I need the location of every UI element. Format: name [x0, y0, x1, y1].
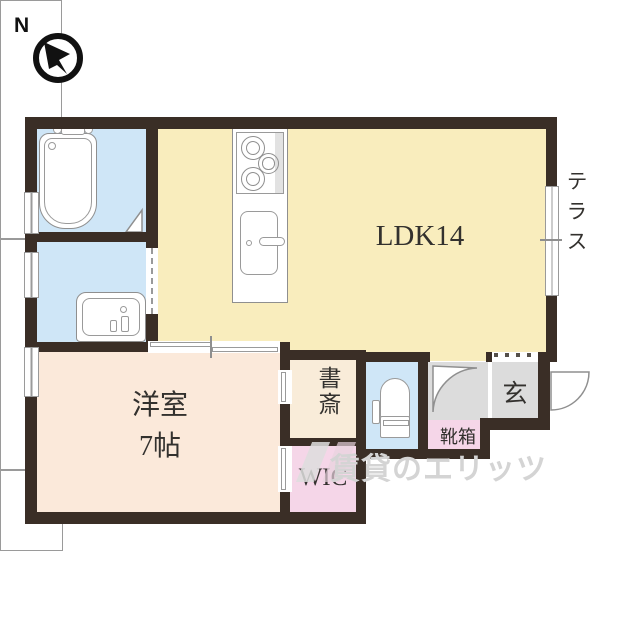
entrance-door-arc: [540, 360, 610, 430]
floor-plan: N テラス: [0, 0, 640, 640]
wall-washroom-bottom: [25, 342, 150, 352]
wall-left: [25, 117, 37, 524]
door-washroom-ldk: [146, 248, 158, 314]
western-room-name: 洋室: [82, 386, 238, 427]
wall-top: [25, 117, 557, 129]
threshold-genkan: [492, 352, 538, 362]
window-washroom: [24, 252, 39, 298]
window-terrace-sliding: [545, 186, 559, 296]
western-room-label: 洋室 7帖: [82, 386, 238, 467]
bathtub: [39, 131, 97, 229]
ldk-label: LDK14: [360, 220, 480, 253]
terrace-window-tick: [540, 239, 562, 241]
wall-study-top: [288, 350, 366, 360]
wall-bath-right: [146, 117, 158, 352]
kitchen-sink: [240, 211, 278, 275]
toilet-fixture: [372, 368, 416, 444]
door-sliding-western: [148, 341, 280, 353]
washbasin: [76, 292, 146, 342]
window-bathroom: [24, 192, 39, 234]
room-ldk: [156, 127, 546, 341]
hall-door-arc: [428, 360, 488, 420]
compass-icon: [30, 30, 86, 86]
north-label: N: [14, 14, 29, 38]
terrace-label: テラス: [561, 170, 591, 260]
wall-genkan-bottom: [480, 418, 550, 430]
stove: [236, 132, 284, 194]
door-study: [278, 370, 292, 404]
window-western: [24, 347, 39, 397]
kitchen-counter: [232, 127, 288, 303]
wall-right-upper: [546, 117, 557, 186]
wall-western-bottom: [25, 512, 366, 524]
watermark-text: 賃貸のエリッツ: [330, 444, 547, 488]
western-room-size: 7帖: [82, 427, 238, 468]
wall-toilet-right: [418, 361, 428, 449]
genkan-label: 玄: [492, 374, 538, 410]
study-label: 書斎: [310, 366, 344, 418]
wall-bath-divider: [25, 232, 158, 242]
wall-column-study-right: [356, 350, 366, 522]
